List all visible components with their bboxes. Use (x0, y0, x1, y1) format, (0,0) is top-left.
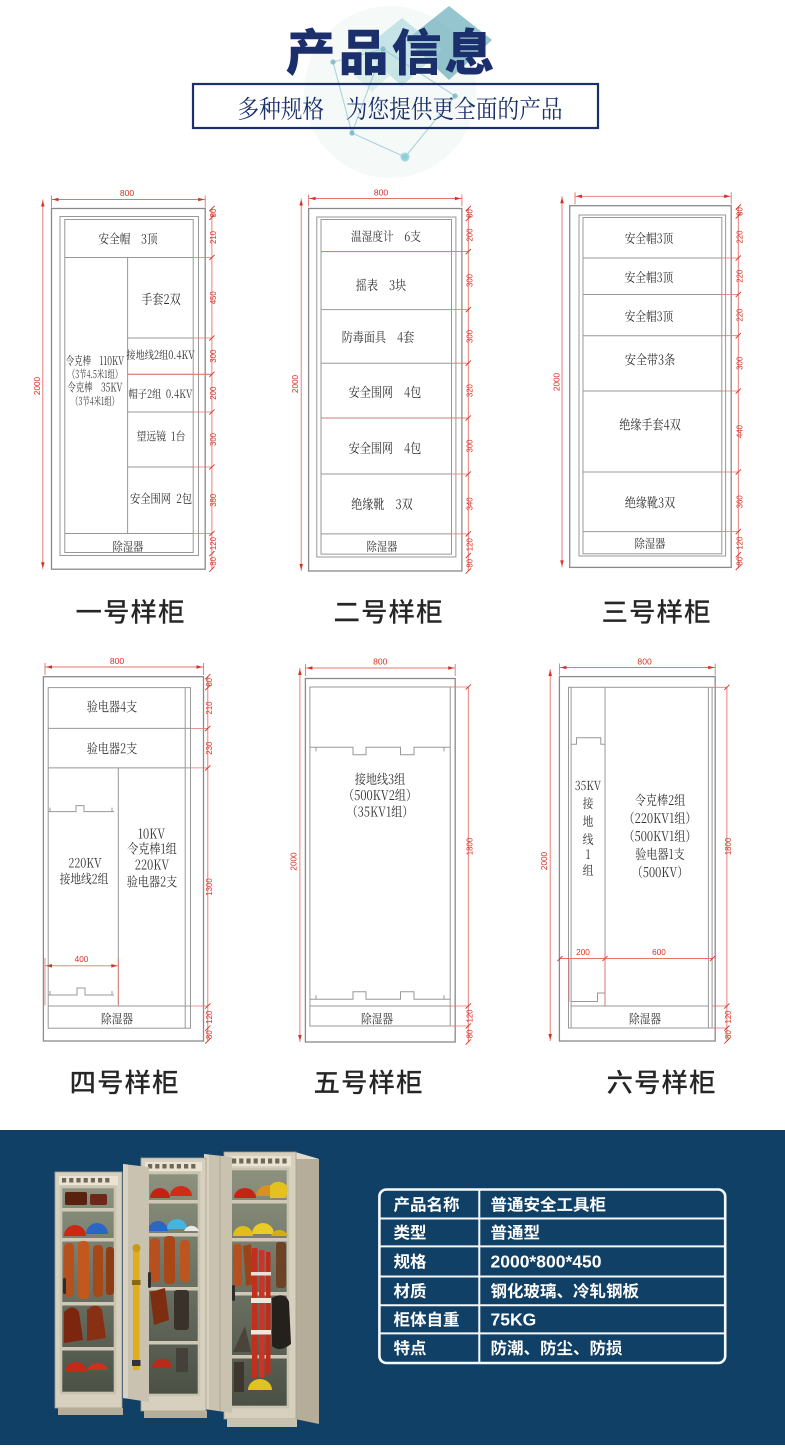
svg-text:220: 220 (735, 269, 744, 283)
svg-text:120: 120 (205, 1010, 214, 1024)
svg-text:210: 210 (205, 701, 214, 715)
svg-text:320: 320 (465, 383, 474, 397)
svg-text:2000: 2000 (33, 376, 42, 395)
svg-text:300: 300 (209, 349, 218, 363)
svg-text:800: 800 (373, 657, 388, 667)
svg-text:2000*800*450: 2000*800*450 (491, 1252, 602, 1272)
svg-text:80: 80 (465, 1029, 474, 1038)
svg-text:120: 120 (724, 1010, 733, 1024)
svg-text:340: 340 (465, 497, 474, 511)
svg-text:210: 210 (209, 230, 218, 244)
svg-text:80: 80 (735, 207, 744, 216)
svg-text:200: 200 (209, 386, 218, 400)
svg-text:400: 400 (75, 955, 89, 964)
svg-text:440: 440 (735, 424, 744, 438)
svg-text:300: 300 (465, 329, 474, 343)
svg-text:220: 220 (735, 230, 744, 244)
svg-text:120: 120 (735, 536, 744, 550)
svg-text:80: 80 (209, 208, 218, 217)
svg-text:380: 380 (209, 493, 218, 507)
svg-text:80: 80 (205, 677, 214, 686)
svg-text:600: 600 (652, 948, 666, 957)
svg-text:80: 80 (209, 556, 218, 565)
svg-text:800: 800 (120, 188, 135, 198)
svg-text:450: 450 (209, 291, 218, 305)
svg-text:200: 200 (576, 948, 590, 957)
svg-text:230: 230 (205, 741, 214, 755)
svg-text:300: 300 (735, 356, 744, 370)
svg-text:2000: 2000 (291, 374, 300, 393)
svg-text:2000: 2000 (553, 372, 562, 391)
svg-text:1800: 1800 (465, 837, 474, 855)
svg-text:80: 80 (205, 1030, 214, 1039)
svg-text:2000: 2000 (290, 852, 299, 871)
svg-text:120: 120 (465, 1009, 474, 1023)
svg-text:800: 800 (637, 657, 652, 667)
svg-text:1800: 1800 (724, 837, 733, 855)
svg-text:120: 120 (465, 538, 474, 552)
svg-text:80: 80 (465, 558, 474, 567)
svg-text:300: 300 (465, 273, 474, 287)
svg-text:2000: 2000 (540, 851, 549, 870)
svg-text:75KG: 75KG (491, 1310, 537, 1330)
svg-text:1300: 1300 (205, 878, 214, 896)
svg-text:300: 300 (465, 439, 474, 453)
svg-text:80: 80 (465, 209, 474, 218)
svg-text:200: 200 (465, 228, 474, 242)
svg-text:80: 80 (735, 556, 744, 565)
svg-text:800: 800 (110, 656, 125, 666)
svg-text:220: 220 (735, 308, 744, 322)
svg-text:800: 800 (374, 188, 389, 198)
svg-text:120: 120 (209, 536, 218, 550)
svg-text:300: 300 (209, 432, 218, 446)
svg-text:360: 360 (735, 495, 744, 509)
svg-text:80: 80 (724, 1030, 733, 1039)
